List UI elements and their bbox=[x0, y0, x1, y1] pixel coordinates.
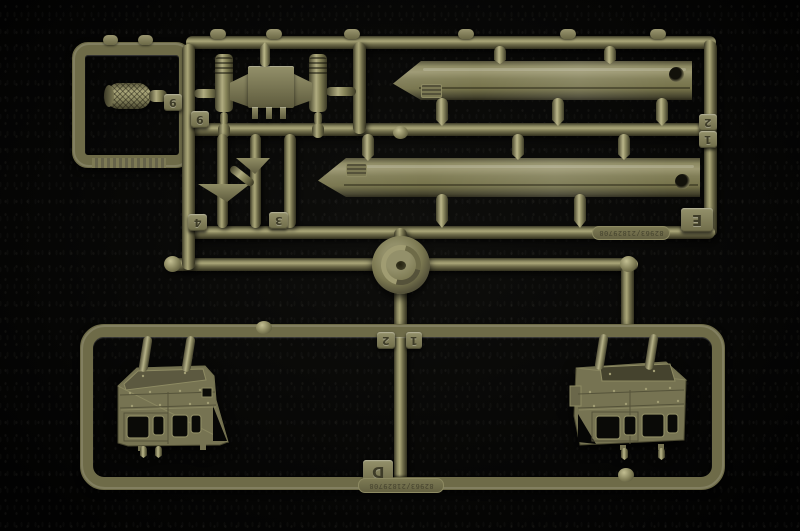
part-tag-4: 4 bbox=[188, 214, 207, 231]
rail-hole bbox=[675, 174, 690, 189]
reel-hub bbox=[396, 261, 406, 270]
rail-hole bbox=[669, 67, 684, 82]
gate-bump bbox=[650, 29, 666, 39]
gate-pin bbox=[618, 134, 630, 160]
gate-bump bbox=[560, 29, 576, 39]
part-tag-9a-label: 9 bbox=[169, 96, 177, 109]
part-tag-1-right: 1 bbox=[699, 131, 717, 148]
cab-panel-left bbox=[110, 360, 236, 452]
gate-bump bbox=[458, 29, 474, 39]
part-tag-1-right-label: 1 bbox=[704, 133, 712, 146]
part-tag-3: 3 bbox=[269, 212, 288, 229]
cylinder-ribs bbox=[309, 57, 327, 77]
part-tag-9b: 9 bbox=[191, 111, 209, 128]
gate-pin bbox=[552, 98, 564, 126]
rail-clamp-detail bbox=[421, 84, 442, 98]
gate-bump bbox=[138, 35, 153, 45]
mold-number-upper-text: 82963/21829708 bbox=[599, 229, 664, 237]
gate-bump bbox=[103, 35, 118, 45]
bracket-leg bbox=[280, 107, 286, 119]
part-tag-9b-label: 9 bbox=[196, 113, 204, 126]
rail-part-lower bbox=[318, 158, 700, 197]
gate-bump bbox=[210, 29, 226, 39]
rail-glint bbox=[423, 68, 686, 71]
gate-ball bbox=[620, 256, 637, 272]
part-tag-1-center: 1 bbox=[406, 332, 422, 349]
muffler-part bbox=[106, 83, 151, 109]
shock-tip-right bbox=[312, 124, 324, 138]
sprue-letter-e-label: E bbox=[692, 211, 702, 229]
mold-number-lower-text: 82963/21829708 bbox=[369, 482, 434, 490]
mold-number-emboss-lower: 82963/21829708 bbox=[358, 478, 444, 493]
gate-bump bbox=[266, 29, 282, 39]
gate-pin bbox=[574, 194, 586, 228]
sprue-letter-tag-e: E bbox=[681, 208, 713, 232]
cylinder-ribs bbox=[215, 57, 233, 77]
gate-pin bbox=[436, 98, 448, 126]
rail-glint bbox=[348, 165, 694, 168]
part-tag-3-label: 3 bbox=[275, 214, 283, 227]
runner-row2 bbox=[186, 123, 713, 136]
flat-gate-striations bbox=[92, 158, 166, 168]
rail-ridge bbox=[419, 87, 690, 89]
part-tag-2-center: 2 bbox=[377, 332, 395, 349]
gate-ball bbox=[618, 468, 634, 482]
bracket-leg bbox=[266, 107, 272, 119]
reel-part bbox=[372, 236, 430, 294]
mast-runner-a bbox=[217, 134, 228, 228]
gate-pin bbox=[436, 194, 448, 228]
rail-part-upper bbox=[393, 61, 692, 100]
bracket-leg bbox=[252, 107, 258, 119]
gate-pin bbox=[656, 98, 668, 126]
gate-pin bbox=[362, 134, 374, 161]
gate-ball bbox=[164, 256, 181, 272]
runner-left bbox=[182, 44, 195, 270]
part-tag-9a: 9 bbox=[164, 94, 182, 111]
rail-ridge bbox=[344, 184, 698, 186]
bracket-plate bbox=[248, 66, 294, 108]
gate-ball bbox=[393, 126, 408, 139]
part-tag-2-right: 2 bbox=[699, 114, 717, 131]
sprue-photo: 9 9 4 3 2 1 2 1 E D 82963/21829708 82963… bbox=[0, 0, 800, 531]
part-tag-2-right-label: 2 bbox=[704, 116, 712, 129]
gate-ball bbox=[256, 321, 272, 334]
part-tag-4-label: 4 bbox=[194, 216, 202, 229]
rail-clamp-detail bbox=[346, 163, 367, 177]
gate-bump bbox=[344, 29, 360, 39]
cab-panel-right bbox=[566, 356, 694, 452]
funnel-part-a bbox=[198, 184, 250, 202]
gate-pin bbox=[512, 134, 524, 160]
mold-number-emboss-upper: 82963/21829708 bbox=[592, 226, 670, 240]
part-tag-2-center-label: 2 bbox=[382, 334, 390, 347]
bracket-stub-right bbox=[326, 87, 356, 96]
part-tag-1-center-label: 1 bbox=[410, 334, 418, 347]
muffler-end-cap bbox=[104, 85, 114, 107]
